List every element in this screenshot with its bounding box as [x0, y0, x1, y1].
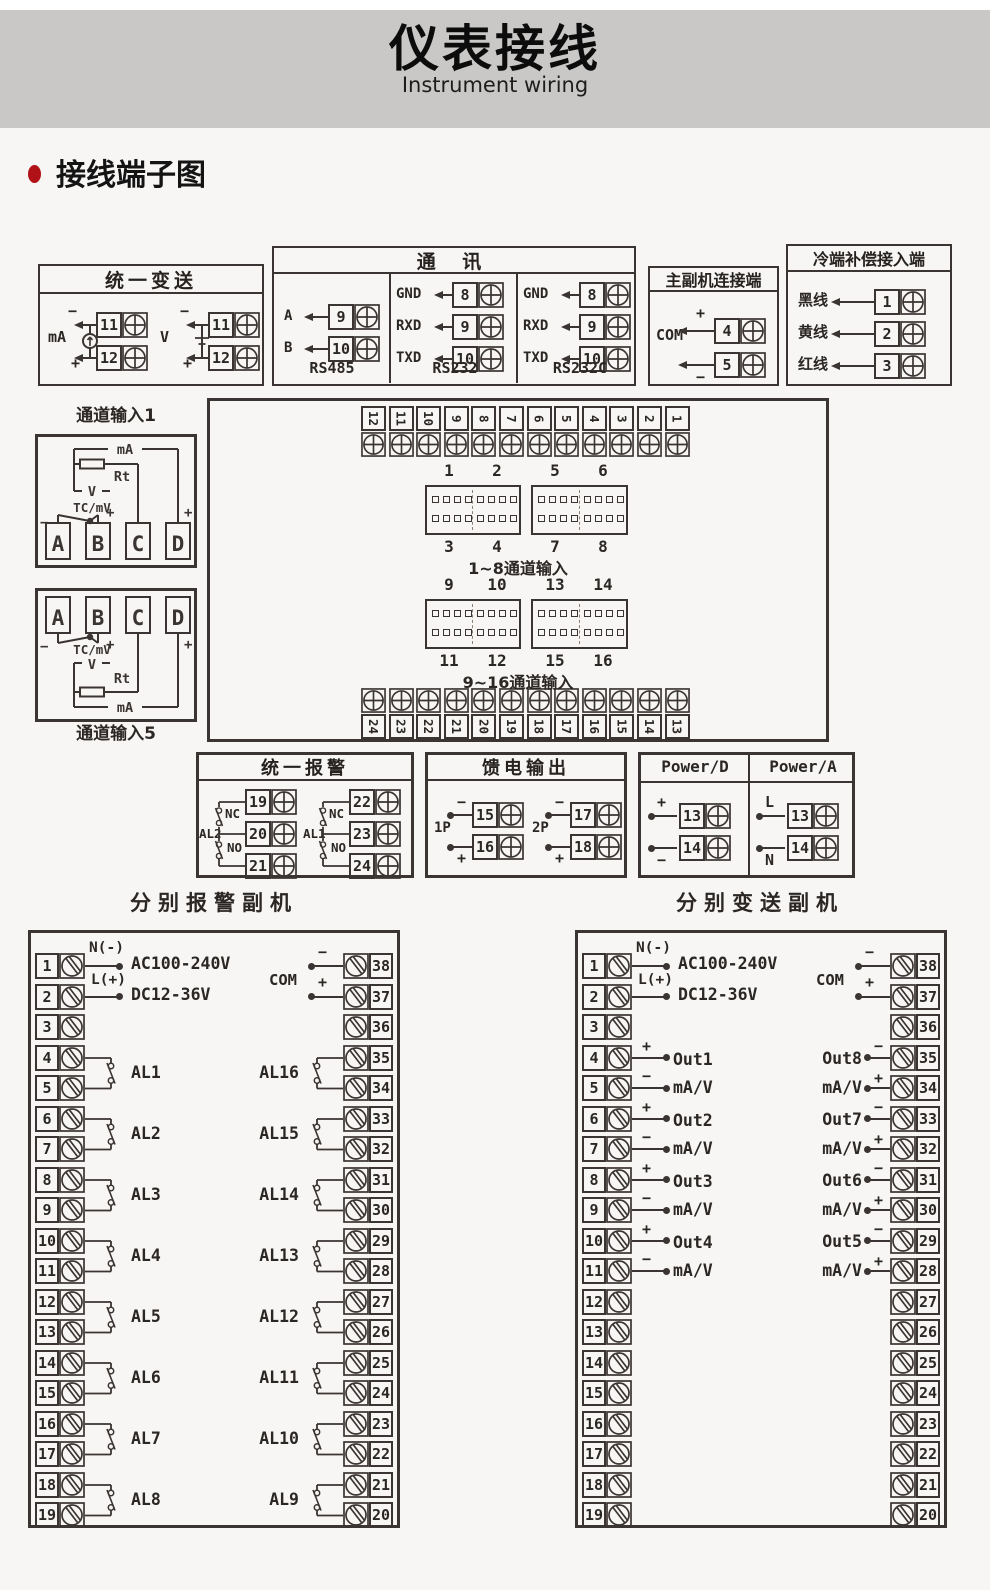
- relay-switch-schematic: [85, 1479, 125, 1522]
- screw-terminal-icon: [343, 1136, 369, 1162]
- screw-terminal-icon: [343, 1380, 369, 1406]
- terminal-number: 11: [389, 406, 414, 431]
- screw-terminal-icon: [890, 1197, 916, 1223]
- relay-switch-schematic: [303, 1479, 343, 1522]
- alarm-relay-label: AL7: [131, 1430, 161, 1447]
- screw-terminal-icon: [605, 282, 631, 308]
- connector-divider: [472, 604, 473, 644]
- terminal-number: 14: [787, 835, 813, 861]
- screw-terminal-icon: [582, 432, 607, 457]
- screw-terminal-icon: [59, 1319, 85, 1345]
- output-label: Out8: [800, 1050, 862, 1067]
- output-unit-label: mA/V: [800, 1140, 862, 1157]
- terminal-number: 8: [579, 282, 605, 308]
- connector-block: [531, 599, 628, 649]
- screw-terminal-icon: [606, 1411, 632, 1437]
- junction-dot: [663, 1115, 670, 1122]
- wire: [632, 1240, 666, 1242]
- wire: [550, 846, 570, 848]
- screw-terminal-icon: [606, 1075, 632, 1101]
- screw-terminal-icon: [122, 312, 148, 338]
- terminal-number: 13: [665, 714, 690, 739]
- output-unit-label: mA/V: [673, 1079, 713, 1096]
- screw-terminal-icon: [59, 1502, 85, 1528]
- connector-label: 9: [437, 577, 461, 594]
- terminal-number: 6: [527, 406, 552, 431]
- screw-terminal-icon: [596, 802, 622, 828]
- interface-name: RS232: [410, 361, 500, 377]
- relay-switch-schematic: [303, 1235, 343, 1278]
- junction-dot: [663, 1237, 670, 1244]
- connector-label: 11: [437, 653, 461, 670]
- screw-terminal-icon: [890, 1045, 916, 1071]
- screw-terminal-icon: [554, 432, 579, 457]
- com-label: COM: [269, 972, 297, 988]
- alarm-slave-box: 1234567891011121314151617181938373635343…: [28, 930, 400, 1528]
- output-label: Out2: [673, 1112, 713, 1129]
- connector-label: 2: [485, 463, 509, 480]
- sign-minus: −: [68, 304, 77, 320]
- connector-label: 16: [591, 653, 615, 670]
- screw-terminal-icon: [890, 1502, 916, 1528]
- relay-switch-schematic: [303, 1052, 343, 1095]
- connector-pin: [606, 496, 613, 503]
- voltage-spec-2: DC12-36V: [131, 986, 210, 1003]
- output-label: Out7: [800, 1111, 862, 1128]
- terminal-number: 9: [582, 1197, 606, 1223]
- output-unit-label: mA/V: [800, 1079, 862, 1096]
- sign: −: [642, 1191, 651, 1207]
- signal-label: GND: [523, 287, 548, 302]
- connector-pin: [549, 496, 556, 503]
- connector-pin: [443, 515, 450, 522]
- wire: [869, 1240, 890, 1242]
- connector-pin: [465, 496, 472, 503]
- terminal-number: 17: [570, 802, 596, 828]
- output-unit-label: mA/V: [673, 1201, 713, 1218]
- signal-type-label: V: [160, 330, 169, 346]
- sign-minus: −: [180, 304, 189, 320]
- wire: [687, 330, 714, 332]
- alarm-relay-label: AL8: [131, 1491, 161, 1508]
- output-unit-label: mA/V: [800, 1201, 862, 1218]
- terminal-number: 22: [369, 1441, 393, 1467]
- terminal-number: 25: [369, 1350, 393, 1376]
- wire-color-label: 黑线: [798, 293, 828, 309]
- connector-pin: [454, 629, 461, 636]
- wire: [313, 316, 328, 318]
- junction-dot: [663, 1085, 670, 1092]
- channel-input-1-schematic: ABCDmARtVTC/mV−++: [38, 437, 194, 565]
- terminal-number: 13: [582, 1319, 606, 1345]
- connector-pin: [617, 496, 624, 503]
- sign: −: [874, 1039, 883, 1055]
- alarm-relay-label: AL15: [237, 1125, 299, 1142]
- terminal-number: 12: [582, 1289, 606, 1315]
- connector-pin: [571, 496, 578, 503]
- terminal-number: 9: [444, 406, 469, 431]
- connector-pin: [465, 610, 472, 617]
- feed-group-name: 1P: [434, 821, 451, 836]
- live-label: L(+): [91, 973, 126, 988]
- box-title: 统一报警: [199, 755, 411, 781]
- connector-pin: [477, 496, 484, 503]
- sign: −: [874, 1161, 883, 1177]
- terminal-number: 24: [916, 1380, 940, 1406]
- relay-switch-schematic: [85, 1357, 125, 1400]
- sign: +: [457, 851, 466, 867]
- terminal-number: 33: [369, 1106, 393, 1132]
- terminal-number: 6: [35, 1106, 59, 1132]
- screw-terminal-icon: [665, 688, 690, 713]
- signal-label: A: [284, 309, 292, 324]
- terminal-number: 10: [582, 1228, 606, 1254]
- connector-label: 6: [591, 463, 615, 480]
- terminal-number: 23: [916, 1411, 940, 1437]
- output-label: Out6: [800, 1172, 862, 1189]
- box-title: 统一变送: [40, 266, 262, 294]
- screw-terminal-icon: [900, 321, 926, 347]
- feed-output-box: 馈电输出1P−15+162P−17+18: [425, 752, 627, 878]
- terminal-number: 34: [916, 1075, 940, 1101]
- sign: +: [865, 975, 874, 991]
- connector-divider: [579, 604, 580, 644]
- connector-pin: [595, 610, 602, 617]
- wire: [313, 965, 343, 967]
- connector-pin: [549, 515, 556, 522]
- screw-terminal-icon: [890, 1167, 916, 1193]
- signal-label: RXD: [523, 319, 548, 334]
- voltage-spec-1: AC100-240V: [678, 955, 777, 972]
- screw-terminal-icon: [59, 1289, 85, 1315]
- connector-block: [531, 485, 628, 535]
- junction-dot: [663, 1146, 670, 1153]
- terminal-number: 9: [452, 314, 478, 340]
- terminal-number: 38: [916, 953, 940, 979]
- connector-pin: [465, 515, 472, 522]
- terminal-number: 22: [916, 1441, 940, 1467]
- connector-pin: [560, 515, 567, 522]
- svg-text:C: C: [132, 532, 145, 556]
- screw-terminal-icon: [499, 432, 524, 457]
- alarm-relay-label: AL4: [131, 1247, 161, 1264]
- connector-label: 10: [485, 577, 509, 594]
- connector-pin: [454, 496, 461, 503]
- terminal-number: 15: [35, 1380, 59, 1406]
- output-unit-label: mA/V: [673, 1140, 713, 1157]
- screw-terminal-icon: [59, 1472, 85, 1498]
- connector-label: 5: [543, 463, 567, 480]
- terminal-number: 22: [416, 714, 441, 739]
- relay-contact-schematic: [213, 795, 245, 873]
- junction-dot: [663, 1176, 670, 1183]
- screw-terminal-icon: [343, 1045, 369, 1071]
- sign: +: [874, 1254, 883, 1270]
- box-title: 主副机连接端: [650, 268, 777, 292]
- screw-terminal-icon: [890, 1075, 916, 1101]
- connector-pin: [499, 515, 506, 522]
- sign: N: [765, 853, 774, 869]
- cold-compensation-box: 冷端补偿接入端黑线1黄线2红线3: [786, 244, 952, 386]
- connector-label: 3: [437, 539, 461, 556]
- screw-terminal-icon: [740, 318, 766, 344]
- sign: +: [874, 1132, 883, 1148]
- terminal-number: 1: [665, 406, 690, 431]
- connector-pin: [595, 496, 602, 503]
- page: 仪表接线 Instrument wiring 接线端子图 统一变送mA−+111…: [0, 0, 990, 1590]
- relay-switch-schematic: [303, 1174, 343, 1217]
- connector-pin: [560, 629, 567, 636]
- connector-pin: [443, 629, 450, 636]
- sign: +: [642, 1039, 651, 1055]
- sign: +: [874, 1193, 883, 1209]
- terminal-number: 26: [369, 1319, 393, 1345]
- screw-terminal-icon: [343, 1502, 369, 1528]
- connector-pin: [617, 515, 624, 522]
- sign: −: [642, 1069, 651, 1085]
- power-box: Power/D+13−14Power/AL13N14: [638, 752, 855, 878]
- power-column-title: Power/A: [751, 759, 855, 776]
- sign: +: [696, 306, 705, 322]
- sign: −: [642, 1252, 651, 1268]
- connector-pin: [488, 496, 495, 503]
- terminal-number: 8: [452, 282, 478, 308]
- screw-terminal-icon: [606, 1045, 632, 1071]
- connector-pin: [538, 496, 545, 503]
- feed-group-name: 2P: [532, 821, 549, 836]
- box-title: 冷端补偿接入端: [788, 246, 950, 272]
- terminal-number: 14: [679, 835, 705, 861]
- sign: +: [555, 851, 564, 867]
- output-label: Out5: [800, 1233, 862, 1250]
- terminal-number: 6: [582, 1106, 606, 1132]
- connector-pin: [510, 515, 517, 522]
- wire: [550, 814, 570, 816]
- screw-terminal-icon: [606, 1380, 632, 1406]
- master-slave-box: 主副机连接端COM+4−5: [648, 266, 779, 386]
- transmit-slave-box: 1234567891011121314151617181938373635343…: [575, 930, 947, 1528]
- terminal-number: 13: [787, 803, 813, 829]
- wire: [869, 1148, 890, 1150]
- connector-pin: [571, 515, 578, 522]
- terminal-number: 21: [444, 714, 469, 739]
- terminal-number: 15: [609, 714, 634, 739]
- sign: −: [874, 1222, 883, 1238]
- connector-pin: [443, 610, 450, 617]
- screw-terminal-icon: [343, 1441, 369, 1467]
- output-unit-label: mA/V: [800, 1262, 862, 1279]
- terminal-number: 11: [96, 312, 122, 338]
- sign: −: [696, 370, 705, 386]
- terminal-number: 14: [637, 714, 662, 739]
- terminal-number: 11: [35, 1258, 59, 1284]
- relay-switch-schematic: [85, 1235, 125, 1278]
- screw-terminal-icon: [596, 834, 622, 860]
- screw-terminal-icon: [813, 835, 839, 861]
- wire-vertical: [748, 755, 750, 875]
- wire: [632, 965, 666, 967]
- wire: [632, 1179, 666, 1181]
- screw-terminal-icon: [59, 1228, 85, 1254]
- terminal-number: 15: [472, 802, 498, 828]
- wire-color-label: 黄线: [798, 325, 828, 341]
- wire: [869, 1118, 890, 1120]
- svg-text:B: B: [92, 606, 105, 630]
- screw-terminal-icon: [59, 1167, 85, 1193]
- sign: −: [865, 945, 874, 961]
- terminal-number: 23: [349, 821, 375, 847]
- screw-terminal-icon: [59, 1136, 85, 1162]
- connector-pin: [571, 610, 578, 617]
- screw-terminal-icon: [527, 432, 552, 457]
- terminal-number: 37: [916, 984, 940, 1010]
- terminal-number: 11: [582, 1258, 606, 1284]
- alarm-relay-label: AL1: [131, 1064, 161, 1081]
- screw-terminal-icon: [478, 314, 504, 340]
- screw-terminal-icon: [606, 1014, 632, 1040]
- wire: [687, 364, 714, 366]
- neutral-label: N(-): [89, 941, 124, 956]
- wire: [632, 1087, 666, 1089]
- connector-pin: [538, 610, 545, 617]
- channel-group-caption: 1~8通道输入: [368, 561, 668, 578]
- screw-terminal-icon: [606, 1197, 632, 1223]
- terminal-number: 24: [369, 1380, 393, 1406]
- screw-terminal-icon: [890, 984, 916, 1010]
- svg-text:+: +: [184, 637, 192, 653]
- connector-pin: [499, 610, 506, 617]
- wire: [570, 294, 579, 296]
- screw-terminal-icon: [389, 432, 414, 457]
- terminal-number: 1: [35, 953, 59, 979]
- connector-pin: [477, 629, 484, 636]
- terminal-number: 26: [916, 1319, 940, 1345]
- wire: [869, 1209, 890, 1211]
- screw-terminal-icon: [606, 1441, 632, 1467]
- svg-text:mA: mA: [117, 442, 133, 458]
- terminal-number: 21: [245, 853, 271, 879]
- junction-dot: [116, 963, 123, 970]
- connector-pin: [584, 515, 591, 522]
- connector-pin: [454, 610, 461, 617]
- wire: [869, 1179, 890, 1181]
- connector-pin: [584, 629, 591, 636]
- wire: [313, 348, 328, 350]
- connector-pin: [454, 515, 461, 522]
- terminal-number: 16: [582, 1411, 606, 1437]
- screw-terminal-icon: [813, 803, 839, 829]
- terminal-number: 4: [35, 1045, 59, 1071]
- voltage-spec-1: AC100-240V: [131, 955, 230, 972]
- screw-terminal-icon: [705, 835, 731, 861]
- sign: +: [657, 795, 666, 811]
- screw-terminal-icon: [354, 304, 380, 330]
- terminal-number: 13: [35, 1319, 59, 1345]
- wiring-diagram: 统一变送mA−+1112V−+1112通 讯A9B10RS485GND8RXD9…: [0, 0, 990, 1590]
- wire: [653, 815, 677, 817]
- screw-terminal-icon: [606, 984, 632, 1010]
- connector-pin: [560, 496, 567, 503]
- sign: +: [874, 1071, 883, 1087]
- terminal-number: 9: [579, 314, 605, 340]
- terminal-number: 4: [582, 1045, 606, 1071]
- connector-label: 14: [591, 577, 615, 594]
- alarm-relay-label: AL11: [237, 1369, 299, 1386]
- connector-label: 13: [543, 577, 567, 594]
- terminal-number: 19: [245, 789, 271, 815]
- screw-terminal-icon: [59, 1197, 85, 1223]
- live-label: L(+): [638, 973, 673, 988]
- connector-pin: [617, 610, 624, 617]
- connector-pin: [584, 496, 591, 503]
- terminal-number: 13: [679, 803, 705, 829]
- connector-pin: [595, 515, 602, 522]
- screw-terminal-icon: [890, 1136, 916, 1162]
- output-label: Out3: [673, 1173, 713, 1190]
- screw-terminal-icon: [890, 1258, 916, 1284]
- terminal-number: 17: [582, 1441, 606, 1467]
- channel-input-5-box: ABCDmARtVTC/mV−++: [35, 588, 197, 722]
- screw-terminal-icon: [343, 1197, 369, 1223]
- sign: −: [874, 1100, 883, 1116]
- terminal-number: 35: [916, 1045, 940, 1071]
- wire: [632, 1270, 666, 1272]
- wire: [840, 365, 874, 367]
- terminal-number: 8: [471, 406, 496, 431]
- sign: −: [642, 1130, 651, 1146]
- relay-switch-schematic: [303, 1418, 343, 1461]
- connector-pin: [432, 496, 439, 503]
- connector-label: 15: [543, 653, 567, 670]
- connector-pin: [538, 629, 545, 636]
- screw-terminal-icon: [606, 1319, 632, 1345]
- signal-label: B: [284, 341, 292, 356]
- box-title: 通 讯: [274, 248, 634, 274]
- sign: −: [457, 795, 466, 811]
- screw-terminal-icon: [59, 1106, 85, 1132]
- screw-terminal-icon: [900, 289, 926, 315]
- sign: L: [765, 795, 774, 811]
- connector-pin: [549, 610, 556, 617]
- screw-terminal-icon: [59, 953, 85, 979]
- svg-text:+: +: [106, 505, 114, 521]
- connector-pin: [499, 629, 506, 636]
- screw-terminal-icon: [890, 1014, 916, 1040]
- svg-text:D: D: [172, 606, 185, 630]
- terminal-number: 5: [714, 352, 740, 378]
- screw-terminal-icon: [59, 1380, 85, 1406]
- screw-terminal-icon: [890, 1319, 916, 1345]
- screw-terminal-icon: [498, 834, 524, 860]
- unified-alarm-box: 统一报警192021AL2NCNO 222324AL1NCNO: [196, 752, 414, 878]
- screw-terminal-icon: [343, 1014, 369, 1040]
- screw-terminal-icon: [890, 1411, 916, 1437]
- voltage-spec-2: DC12-36V: [678, 986, 757, 1003]
- connector-label: 1: [437, 463, 461, 480]
- terminal-number: 2: [582, 984, 606, 1010]
- sign: +: [642, 1100, 651, 1116]
- svg-text:A: A: [52, 606, 65, 630]
- terminal-number: 12: [208, 345, 234, 371]
- terminal-number: 18: [527, 714, 552, 739]
- wire: [869, 1057, 890, 1059]
- relay-contact-schematic: [317, 795, 349, 873]
- terminal-number: 34: [369, 1075, 393, 1101]
- wire-color-label: 红线: [798, 357, 828, 373]
- screw-terminal-icon: [343, 1075, 369, 1101]
- sign: −: [318, 945, 327, 961]
- terminal-number: 9: [35, 1197, 59, 1223]
